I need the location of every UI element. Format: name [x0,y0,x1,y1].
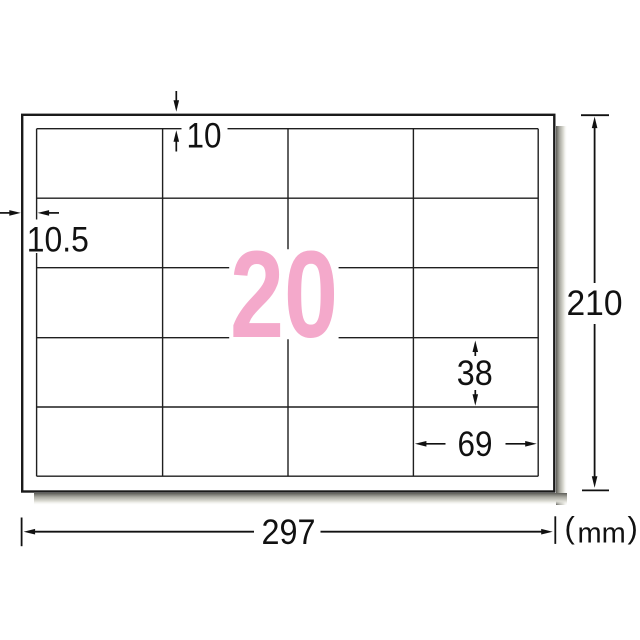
svg-text:10.5: 10.5 [27,219,89,259]
svg-text:20: 20 [230,227,338,364]
svg-text:38: 38 [457,353,493,393]
svg-text:10: 10 [187,116,222,156]
svg-text:297: 297 [262,512,316,552]
svg-text:210: 210 [567,283,623,323]
svg-text:69: 69 [458,424,493,464]
svg-text:mm: mm [578,518,626,550]
svg-text:): ) [628,510,638,545]
svg-text:(: ( [565,510,576,545]
